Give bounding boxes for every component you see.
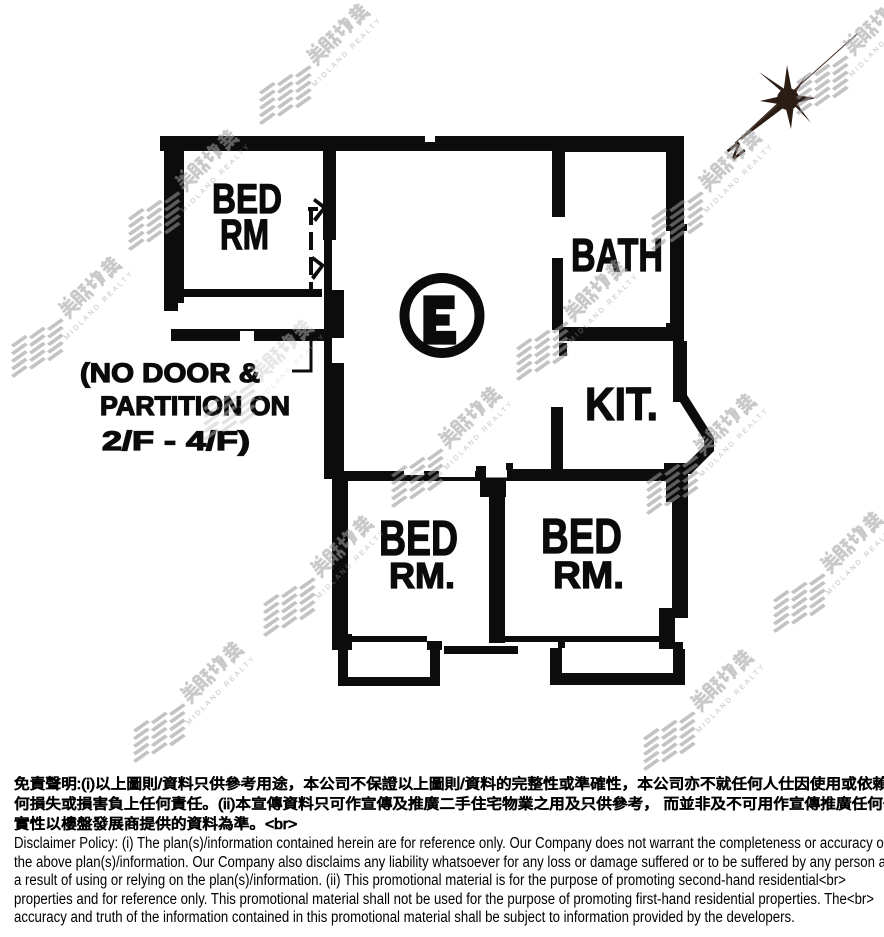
svg-text:RM: RM <box>220 211 269 259</box>
svg-text:RM.: RM. <box>389 555 455 596</box>
svg-text:2/F - 4/F): 2/F - 4/F) <box>102 426 250 456</box>
svg-text:KIT.: KIT. <box>585 378 658 430</box>
svg-text:BATH: BATH <box>571 229 663 281</box>
svg-text:(NO DOOR &: (NO DOOR & <box>80 358 260 388</box>
svg-text:RM.: RM. <box>553 555 624 597</box>
